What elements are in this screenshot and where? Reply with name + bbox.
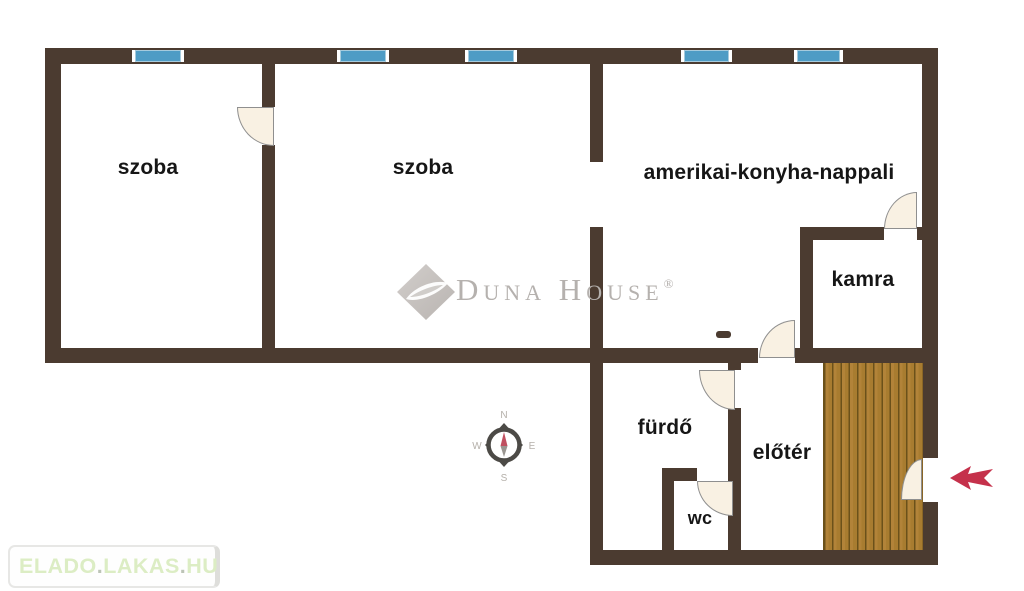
room-label-furdo: fürdő [638,416,693,440]
wood-floor-area [823,363,923,550]
compass-east-label: E [529,441,536,452]
eladolakashu-logo: ELADO.LAKAS.HU [8,545,220,588]
room-label-kamra: kamra [832,268,895,292]
door-swing-living-to-eloter [759,320,795,358]
window [684,50,729,62]
room-label-living: amerikai-konyha-nappali [644,161,895,185]
wall-dash-marker [716,331,731,338]
wall-left [45,48,61,363]
wall-kamra-top-right [917,227,938,240]
wall-middle-horizontal-left [45,348,758,363]
compass-west-label: W [472,441,482,452]
wall-room-divider-2-upper [590,48,603,162]
wall-wc-left [662,468,674,565]
wall-right-upper [922,48,938,458]
door-swing-kamra [884,192,917,229]
logo-text-hu: HU [186,554,218,578]
wall-middle-horizontal-right [795,348,938,363]
room-label-szoba-1: szoba [118,156,179,180]
duna-house-diamond-icon [396,263,456,321]
window [135,50,181,62]
door-swing-szoba [237,107,274,146]
wall-bottom [590,550,938,565]
compass-south-label: S [501,473,508,484]
wall-room-divider-1-lower [262,145,275,348]
room-label-eloter: előtér [753,441,811,465]
logo-text-elado: ELADO [19,554,97,578]
duna-house-brand-text: Duna House [456,272,664,307]
room-label-wc: wc [688,508,712,529]
wall-furdo-eloter-divider-upper [728,348,741,370]
window [797,50,840,62]
registered-trademark-symbol: ® [664,276,674,291]
room-label-szoba-2: szoba [393,156,454,180]
floor-plan: szoba szoba amerikai-konyha-nappali kamr… [0,0,1024,591]
window [468,50,514,62]
eladolakashu-wordmark: ELADO.LAKAS.HU [19,554,218,579]
compass-rose-icon: N W E S [466,400,542,486]
wall-room-divider-1-upper [262,48,275,107]
duna-house-wordmark: Duna House® [456,272,674,308]
wall-kamra-left [800,227,813,363]
window [340,50,386,62]
entrance-arrow-icon [948,464,998,492]
compass-north-label: N [500,410,507,421]
wall-wc-top-right [733,468,741,481]
door-swing-furdo [699,370,735,410]
logo-text-lakas: LAKAS [103,554,180,578]
